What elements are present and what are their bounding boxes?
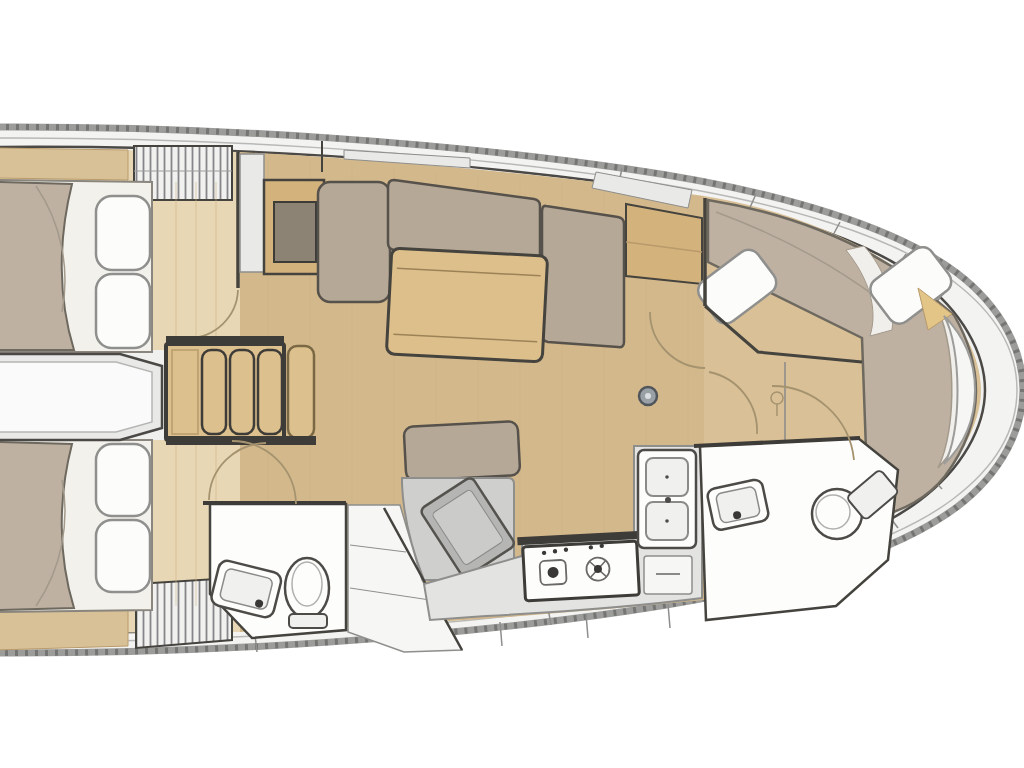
dining-table [386,248,547,362]
shelf-wood [0,148,128,180]
side-locker [240,154,264,272]
step-landing [172,350,198,434]
step [258,350,282,434]
table-top [386,248,547,362]
shelf-wood [0,608,128,650]
floor-plan-canvas [0,0,1024,768]
mast-step-center [645,393,651,399]
bench-cushion [404,421,521,481]
passage-inner [0,362,152,432]
stove-group [517,531,646,602]
pillow [96,274,150,348]
step-bottom [288,346,314,438]
sink-drain [665,519,669,523]
companionway [166,336,316,445]
engine-passage [0,354,162,440]
step-bottom-bar [166,436,316,445]
settee-end-cushion [318,182,390,302]
faucet-icon [665,497,671,503]
pillow [96,196,150,270]
tv-cabinet-inset [274,202,316,262]
toilet-base [289,614,327,628]
step [202,350,226,434]
pillow [96,444,150,516]
floor-plan-page [0,0,1024,768]
pillow [96,520,150,592]
settee-corner-cushion [542,206,624,347]
bench-seat [404,421,521,481]
step [230,350,254,434]
sink-drain [665,475,669,479]
